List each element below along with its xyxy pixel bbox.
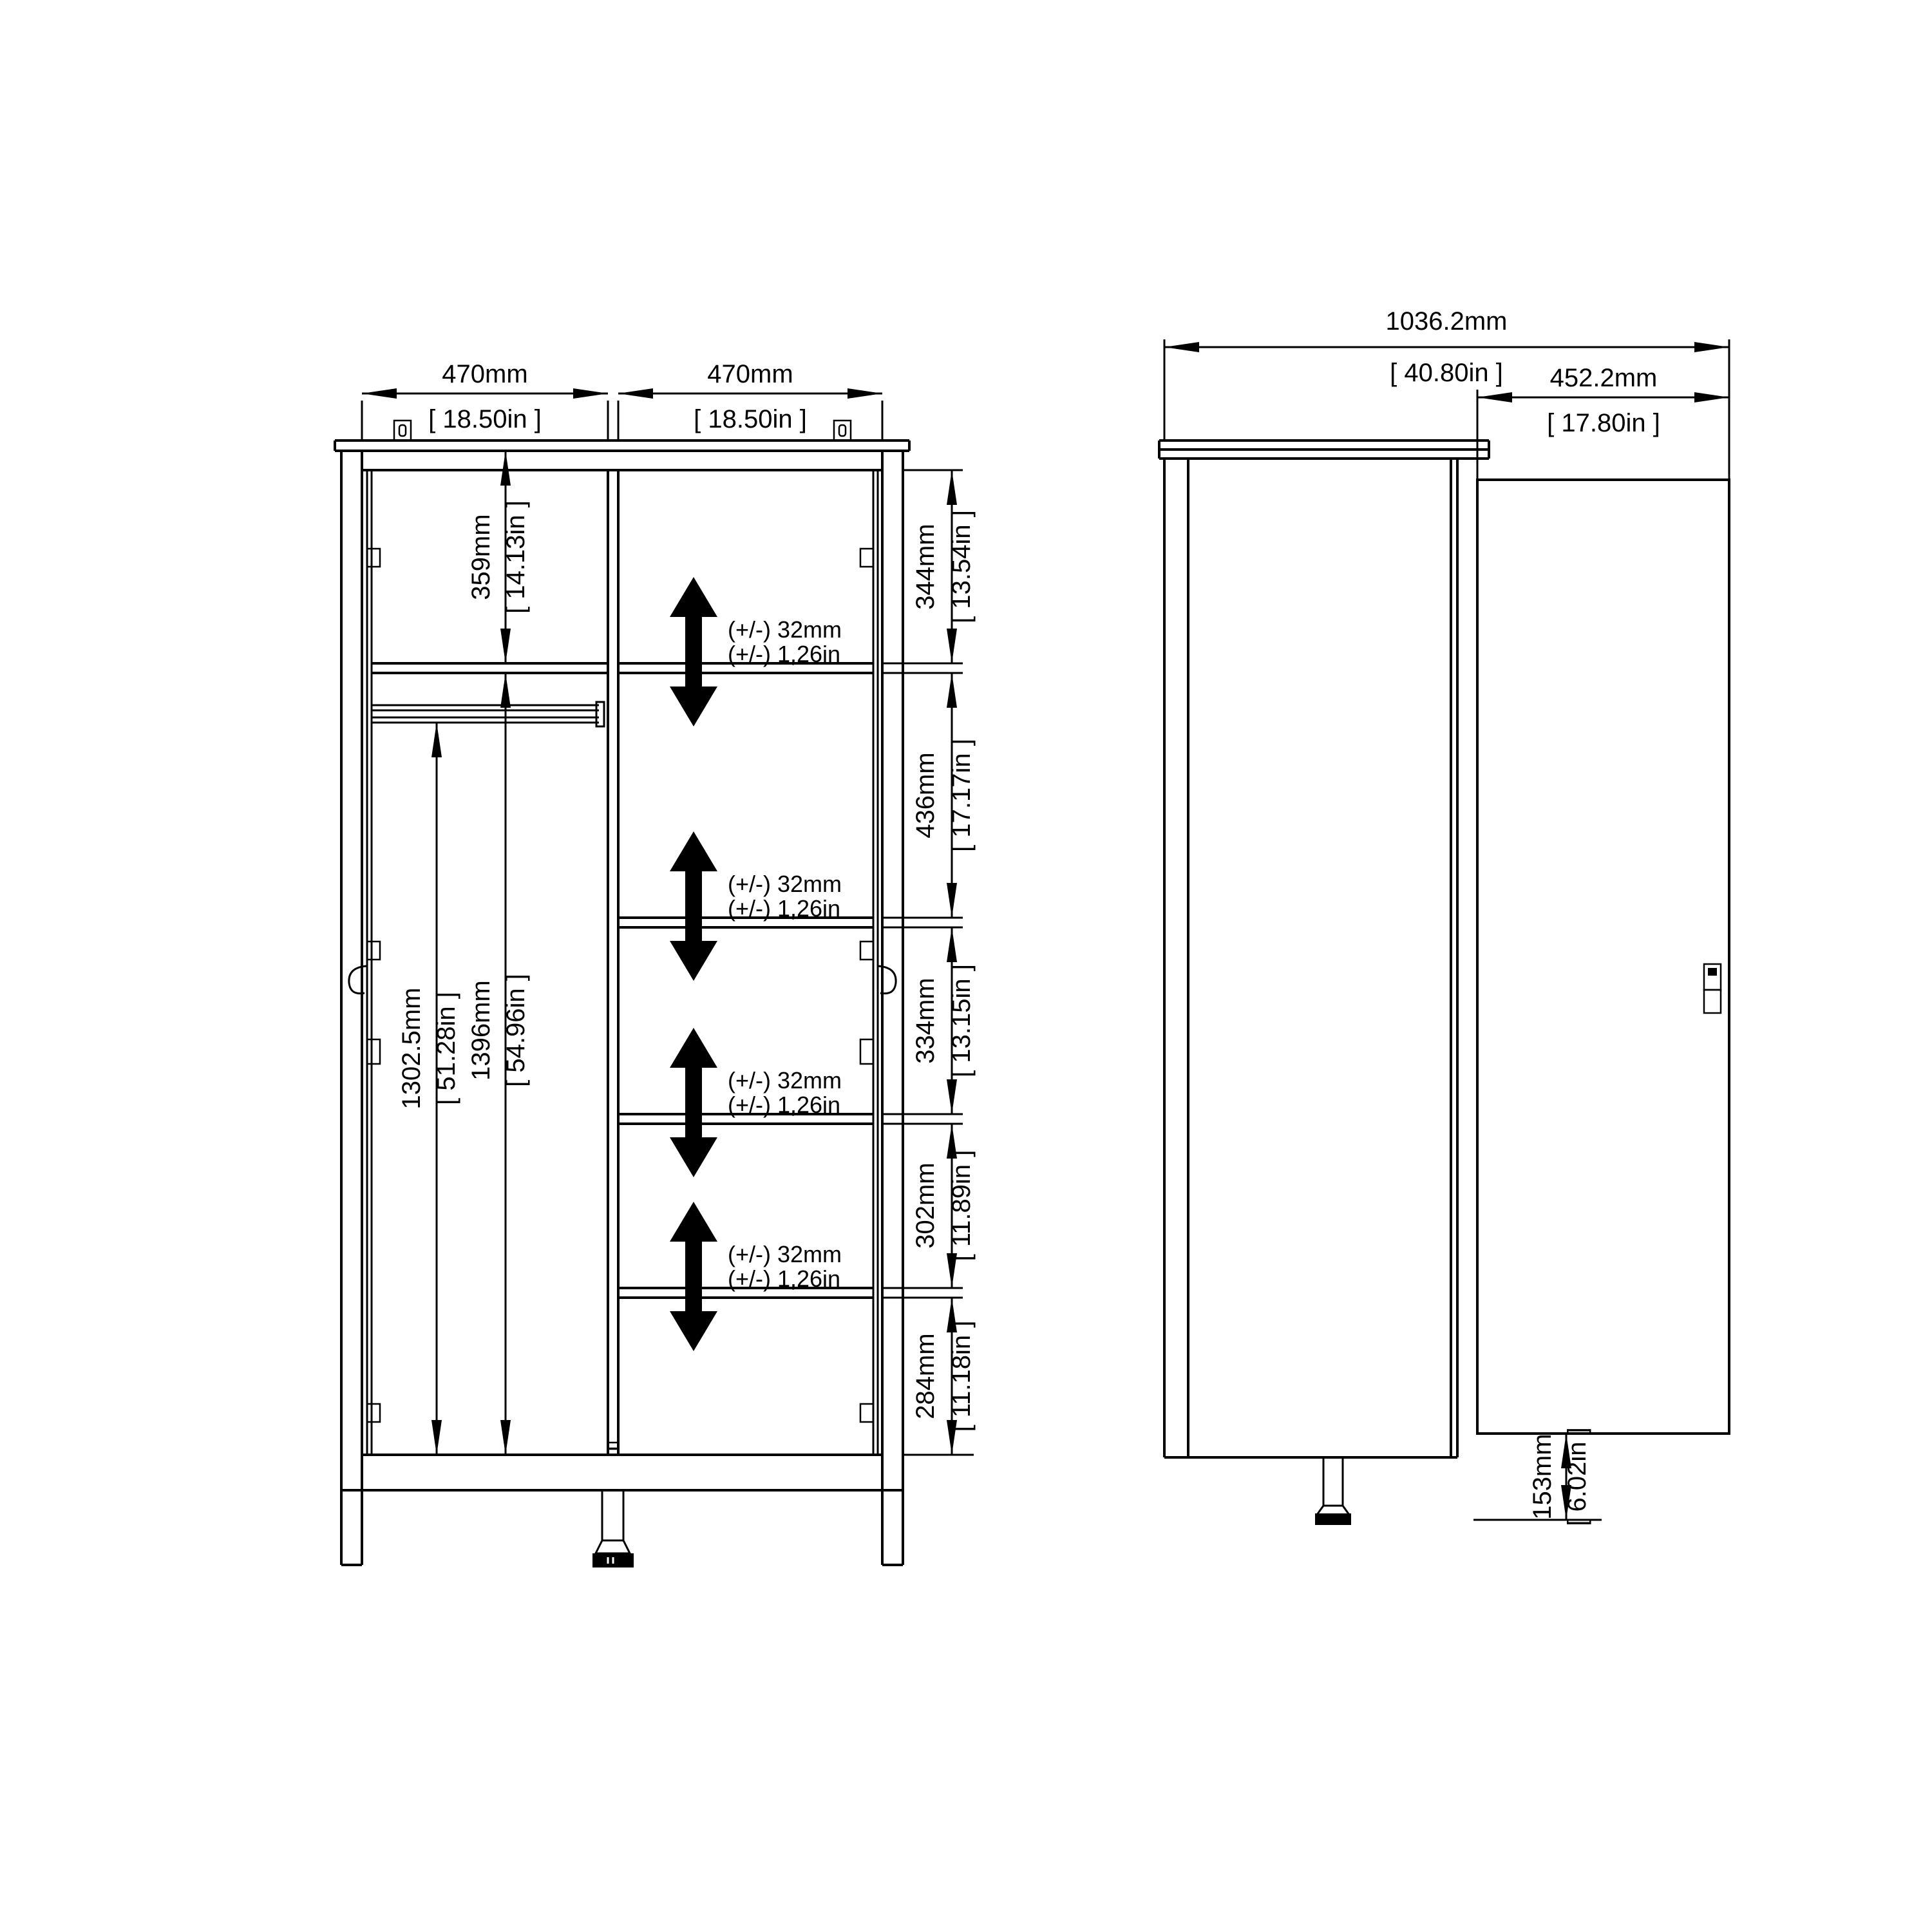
side-top-panel [1159,440,1489,459]
hanging-rail [372,702,604,726]
dim-label-mm: 344mm [911,524,940,609]
adjust-note-mm: (+/-) 32mm [728,871,842,897]
dim-label-in: [ 13.54in ] [947,510,976,623]
hinge-icon [367,1404,380,1422]
hinge-icon [860,1039,873,1064]
dim-label-in: [ 54.96in ] [502,974,530,1087]
double-arrow-icon [670,1202,717,1351]
dim-label-mm: 284mm [911,1333,940,1419]
dim-label-in: [ 13.15in ] [947,964,976,1077]
adjust-note-in: (+/-) 1,26in [728,641,840,667]
dim-label-in: [ 17.80in ] [1547,409,1660,437]
dim-label-mm: 470mm [442,360,527,388]
dim-label-in: [ 40.80in ] [1390,359,1503,387]
dim-label-mm: 359mm [467,514,495,600]
dim-door-width: 452.2mm [ 17.80in ] [1477,364,1729,480]
dim-upper-shelf: 359mm [ 14.13in ] [467,451,530,663]
dim-label-mm: 452.2mm [1550,364,1658,392]
front-right-shelves [618,663,873,1298]
dim-label-in: [ 11.89in ] [947,1150,976,1262]
hinge-icon [367,942,380,960]
adjust-note-mm: (+/-) 32mm [728,1241,842,1267]
dim-label-mm: 1036.2mm [1386,307,1508,336]
dim-label-in: [ 17.17in ] [947,739,976,852]
dim-label-mm: 436mm [911,752,940,838]
double-arrow-icon [670,831,717,981]
front-centre-partition [608,470,618,1455]
dim-label-in: [ 18.50in ] [694,405,807,433]
front-top-panel [335,421,909,451]
adjust-note-in: (+/-) 1,26in [728,1092,840,1118]
hinge-icon [367,1039,380,1064]
centre-foot [592,1490,634,1567]
double-arrow-icon [670,577,717,726]
wall-bracket-icon [834,421,851,440]
side-open-door [1477,480,1729,1434]
hinge-icon [860,942,873,960]
dim-label-mm: 1396mm [467,980,495,1081]
side-carcass [1164,459,1457,1457]
technical-drawing-canvas: 470mm [ 18.50in ] 470mm [ 18.50in ] 359m… [0,0,1932,1932]
side-view: 1036.2mm [ 40.80in ] 452.2mm [ 17.80in ]… [1159,307,1729,1526]
dim-label-in: [ 11.18in ] [947,1321,976,1432]
dim-label-in: [ 18.50in ] [428,405,542,433]
dim-label-mm: 302mm [911,1162,940,1248]
dim-label-mm: 153mm [1528,1434,1557,1519]
hinge-icon [367,549,380,567]
dim-overall-depth: 1036.2mm [ 40.80in ] [1164,307,1729,480]
dim-door-to-floor: 153mm [ 6.02in ] [1473,1427,1602,1526]
wardrobe-dimension-drawing: 470mm [ 18.50in ] 470mm [ 18.50in ] 359m… [0,0,1932,1932]
dim-label-in: [ 6.02in ] [1563,1427,1591,1526]
dim-rail-to-bottom: 1302.5mm [ 51.28in ] [397,723,460,1455]
adjust-note-mm: (+/-) 32mm [728,616,842,643]
front-left-door-edge [349,470,380,1455]
dim-label-in: [ 14.13in ] [502,500,530,614]
hinge-icon [860,549,873,567]
dim-label-mm: 334mm [911,978,940,1063]
hinge-icon [860,1404,873,1422]
front-right-door-edge [860,470,896,1455]
dim-shelf-spacings: 344mm [ 13.54in ] 436mm [ 17.17in ] 334m… [882,470,976,1455]
side-foot [1315,1457,1351,1525]
dim-label-in: [ 51.28in ] [432,992,460,1105]
double-arrow-icon [670,1028,717,1177]
dim-front-width-right: 470mm [ 18.50in ] [618,360,882,440]
front-view: 470mm [ 18.50in ] 470mm [ 18.50in ] 359m… [335,360,976,1567]
front-left-shelf [372,663,608,673]
adjust-note-in: (+/-) 1,26in [728,1265,840,1292]
door-lock-icon [1704,964,1721,1013]
dim-label-mm: 1302.5mm [397,988,426,1110]
wall-bracket-icon [394,421,411,440]
door-handle-icon [349,966,367,994]
adjust-note-in: (+/-) 1,26in [728,895,840,922]
door-handle-icon [878,966,896,994]
dim-shelf-to-bottom: 1396mm [ 54.96in ] [467,673,530,1455]
dim-label-mm: 470mm [707,360,793,388]
adjustable-shelf-arrows: (+/-) 32mm (+/-) 1,26in (+/-) 32mm (+/-)… [670,577,842,1351]
adjust-note-mm: (+/-) 32mm [728,1067,842,1094]
